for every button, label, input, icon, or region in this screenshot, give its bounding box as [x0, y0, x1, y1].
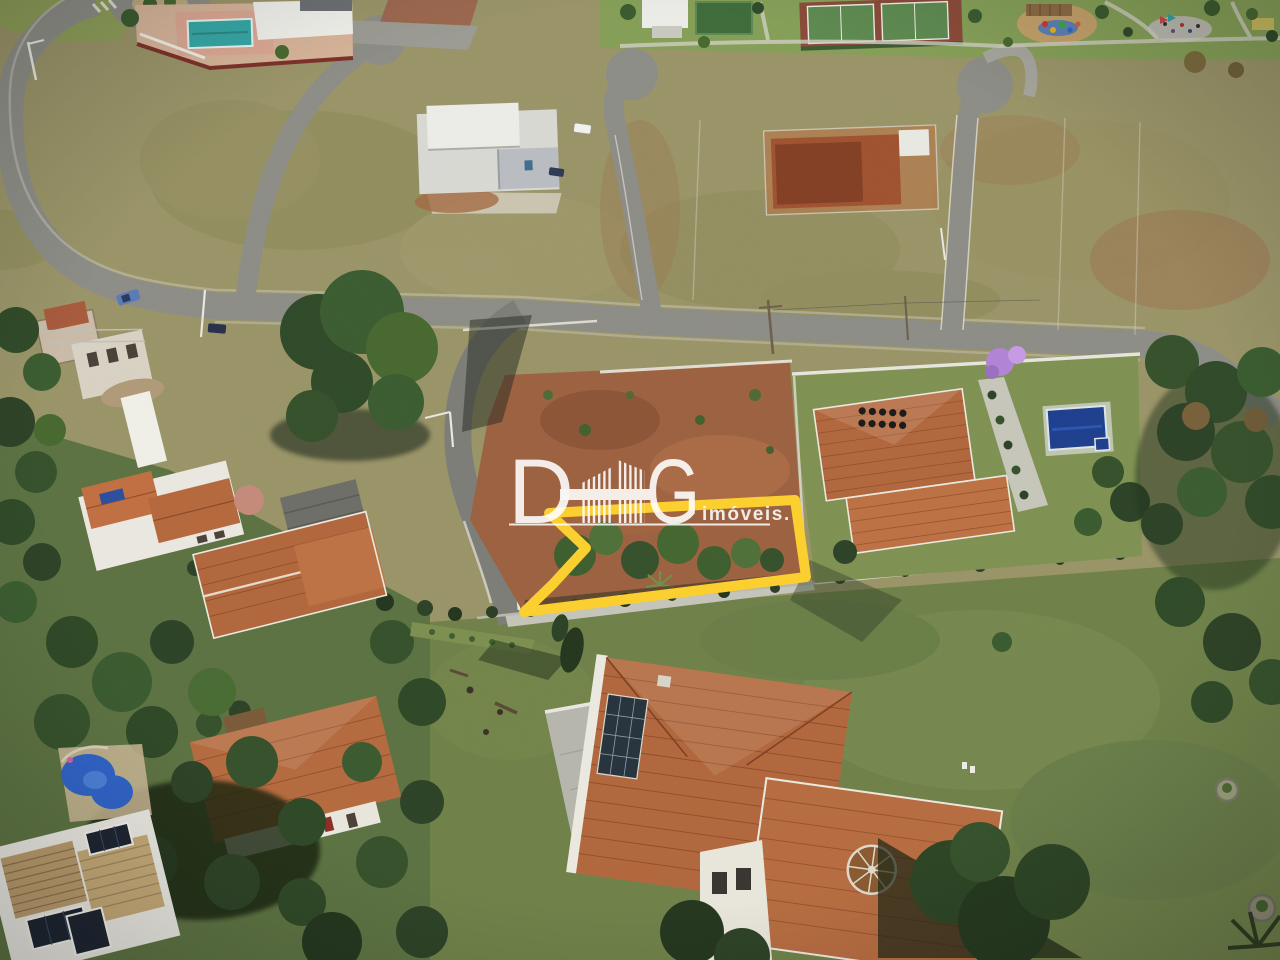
logo-tagline: imóveis. — [702, 504, 791, 525]
aerial-scene: D G imóveis. — [0, 0, 1280, 960]
logo-letter-g: G — [646, 441, 700, 543]
aerial-photo-container: D G imóveis. — [0, 0, 1280, 960]
